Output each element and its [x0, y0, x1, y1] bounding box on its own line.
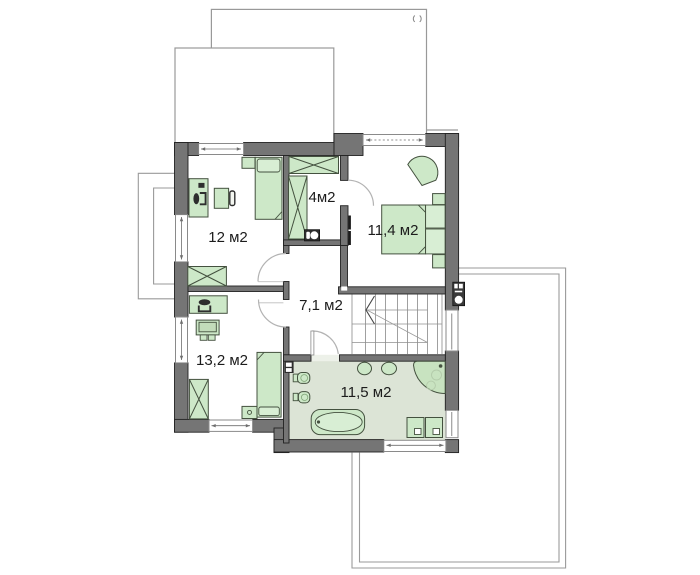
svg-text:11,4 м2: 11,4 м2: [368, 222, 419, 239]
svg-text:7,1 м2: 7,1 м2: [299, 297, 343, 314]
svg-text:4м2: 4м2: [309, 189, 336, 206]
svg-text:13,2 м2: 13,2 м2: [196, 352, 248, 369]
svg-text:12 м2: 12 м2: [208, 229, 248, 246]
svg-text:11,5 м2: 11,5 м2: [341, 384, 392, 401]
